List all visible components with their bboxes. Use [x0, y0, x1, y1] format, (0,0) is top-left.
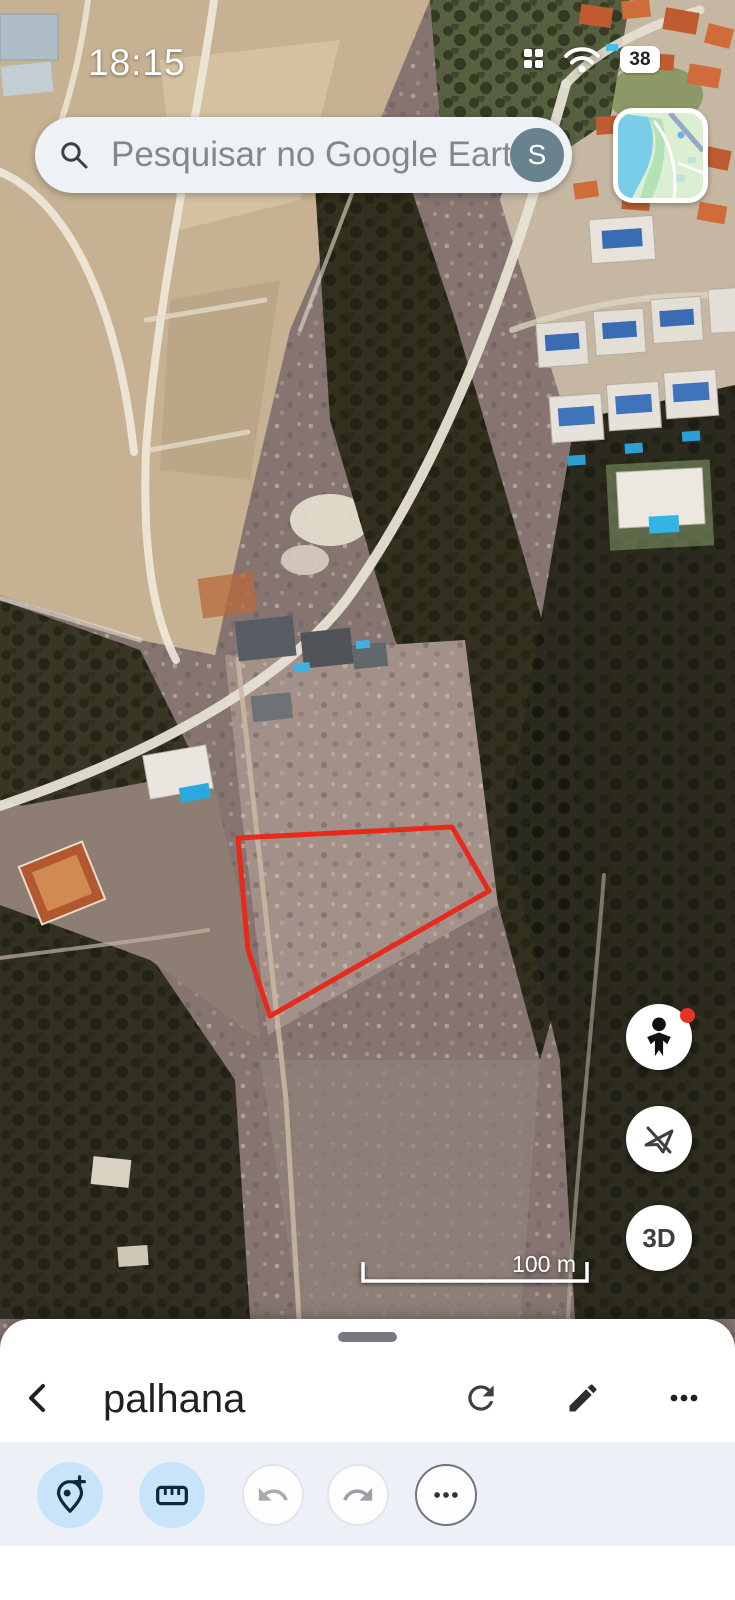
3d-label: 3D [642, 1223, 675, 1254]
pencil-icon [565, 1380, 601, 1416]
bare-spot [281, 545, 329, 575]
redo-button[interactable] [327, 1464, 389, 1526]
bottom-sheet: palhana [0, 1319, 735, 1600]
edit-toolbar [0, 1442, 735, 1546]
street-view-button[interactable] [626, 1004, 692, 1070]
account-letter: S [528, 139, 547, 171]
more-options-button[interactable] [660, 1374, 708, 1422]
map-style-thumbnail[interactable] [613, 108, 708, 203]
battery-percent: 38 [629, 49, 650, 71]
measure-button[interactable] [139, 1462, 205, 1528]
search-placeholder: Pesquisar no Google Earth [111, 135, 510, 175]
drag-handle[interactable] [338, 1332, 397, 1342]
clock: 18:15 [88, 42, 186, 84]
back-chevron-icon [21, 1381, 55, 1415]
ruler-icon [151, 1474, 193, 1516]
pegman-icon [639, 1015, 679, 1059]
refresh-button[interactable] [457, 1374, 505, 1422]
network-grid-icon [524, 49, 543, 68]
refresh-icon [462, 1379, 500, 1417]
construction-site [197, 571, 257, 618]
fly-tour-button[interactable] [626, 1106, 692, 1172]
google-earth-app: 18:15 38 Pesquisar no Google Earth S [0, 0, 735, 1600]
account-avatar[interactable]: S [510, 128, 564, 182]
scrub-clearing [260, 1060, 540, 1319]
3d-toggle-button[interactable]: 3D [626, 1205, 692, 1271]
more-horiz-icon [666, 1380, 702, 1416]
search-icon [59, 140, 89, 170]
notification-dot [680, 1008, 695, 1023]
undo-icon [256, 1478, 290, 1512]
battery-icon: 38 [620, 46, 660, 73]
search-bar[interactable]: Pesquisar no Google Earth S [35, 117, 572, 193]
mini-map-icon [618, 113, 703, 198]
toolbar-more-button[interactable] [415, 1464, 477, 1526]
add-placemark-button[interactable] [37, 1462, 103, 1528]
undo-button[interactable] [242, 1464, 304, 1526]
more-horiz-icon [430, 1479, 462, 1511]
edit-button[interactable] [559, 1374, 607, 1422]
wifi-icon [562, 44, 602, 74]
plane-disabled-icon [638, 1118, 680, 1160]
back-button[interactable] [14, 1374, 62, 1422]
add-pin-icon [49, 1474, 91, 1516]
villa-with-pool [606, 459, 714, 550]
project-title: palhana [103, 1377, 245, 1422]
redo-icon [341, 1478, 375, 1512]
